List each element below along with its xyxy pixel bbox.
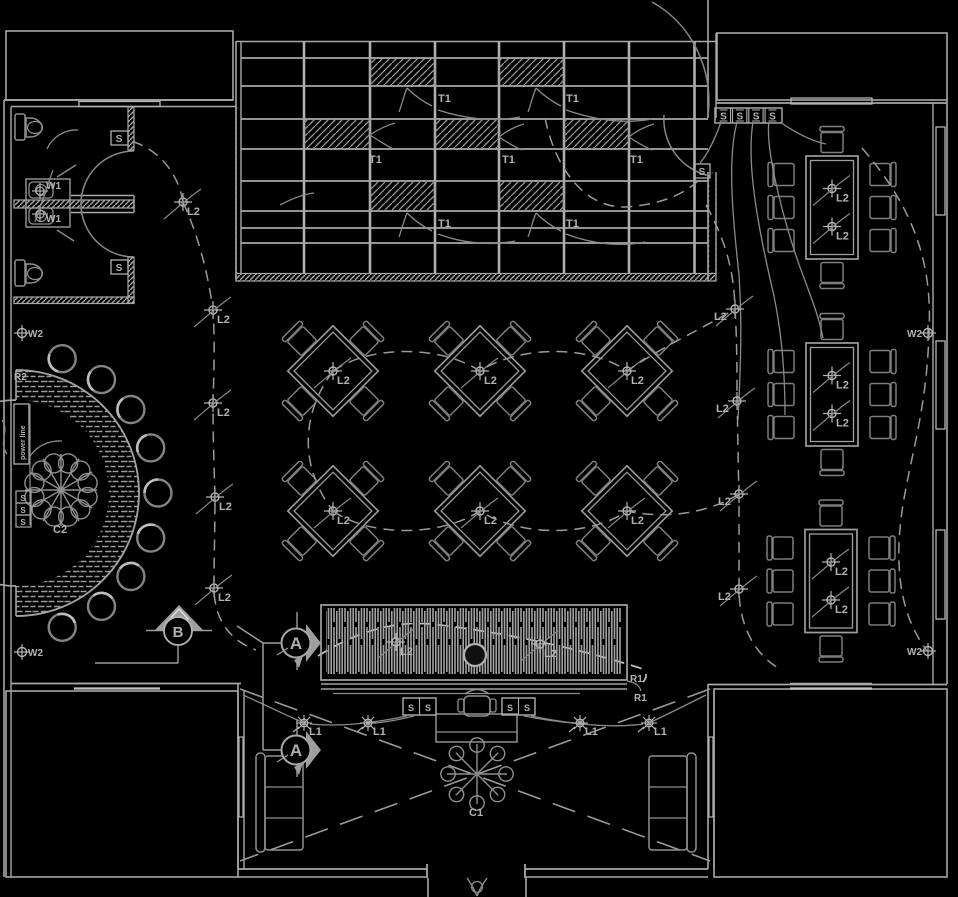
svg-text:L2: L2 — [400, 646, 413, 658]
svg-text:A: A — [290, 741, 302, 760]
svg-text:T1: T1 — [438, 93, 451, 105]
svg-text:W1: W1 — [46, 181, 61, 192]
svg-text:S: S — [507, 703, 513, 713]
svg-text:L2: L2 — [217, 407, 230, 419]
svg-text:L2: L2 — [836, 231, 849, 243]
svg-text:S: S — [20, 506, 26, 515]
svg-text:L2: L2 — [718, 591, 731, 603]
svg-text:T1: T1 — [566, 218, 579, 230]
svg-text:W2: W2 — [28, 648, 43, 659]
svg-text:L1: L1 — [654, 726, 667, 738]
svg-text:L2: L2 — [217, 314, 230, 326]
svg-text:L2: L2 — [835, 604, 848, 616]
svg-text:L1: L1 — [373, 726, 386, 738]
svg-text:R2: R2 — [14, 372, 27, 383]
svg-text:T1: T1 — [438, 218, 451, 230]
svg-text:C2: C2 — [53, 524, 67, 536]
svg-text:W2: W2 — [907, 329, 922, 340]
svg-text:S: S — [408, 703, 414, 713]
svg-text:L2: L2 — [836, 380, 849, 392]
svg-text:L2: L2 — [544, 648, 557, 660]
svg-text:L1: L1 — [309, 726, 322, 738]
svg-text:T1: T1 — [502, 154, 515, 166]
svg-text:W1: W1 — [46, 214, 61, 225]
svg-text:L2: L2 — [337, 515, 350, 527]
svg-text:L2: L2 — [718, 496, 731, 508]
svg-text:T1: T1 — [630, 154, 643, 166]
svg-text:S: S — [699, 167, 706, 178]
svg-text:R1: R1 — [634, 693, 647, 704]
svg-text:L2: L2 — [484, 375, 497, 387]
svg-text:L2: L2 — [631, 375, 644, 387]
svg-text:S: S — [116, 134, 123, 145]
svg-text:L2: L2 — [631, 515, 644, 527]
svg-text:power line: power line — [20, 425, 27, 460]
svg-text:W2: W2 — [28, 329, 43, 340]
svg-text:L2: L2 — [836, 193, 849, 205]
svg-text:L2: L2 — [187, 206, 200, 218]
svg-text:C1: C1 — [469, 807, 483, 819]
svg-text:T1: T1 — [566, 93, 579, 105]
svg-text:S: S — [116, 263, 123, 274]
svg-text:L2: L2 — [218, 592, 231, 604]
svg-text:A: A — [290, 634, 302, 653]
svg-text:S: S — [425, 703, 431, 713]
svg-text:S: S — [524, 703, 530, 713]
svg-text:W2: W2 — [907, 647, 922, 658]
svg-text:B: B — [173, 624, 184, 641]
svg-text:L2: L2 — [835, 566, 848, 578]
svg-text:R1: R1 — [630, 674, 643, 685]
svg-text:L2: L2 — [337, 375, 350, 387]
svg-text:L2: L2 — [219, 501, 232, 513]
svg-text:S: S — [20, 518, 26, 527]
svg-text:S: S — [20, 494, 26, 503]
svg-text:L2: L2 — [836, 418, 849, 430]
svg-text:L2: L2 — [716, 403, 729, 415]
svg-text:T1: T1 — [369, 154, 382, 166]
